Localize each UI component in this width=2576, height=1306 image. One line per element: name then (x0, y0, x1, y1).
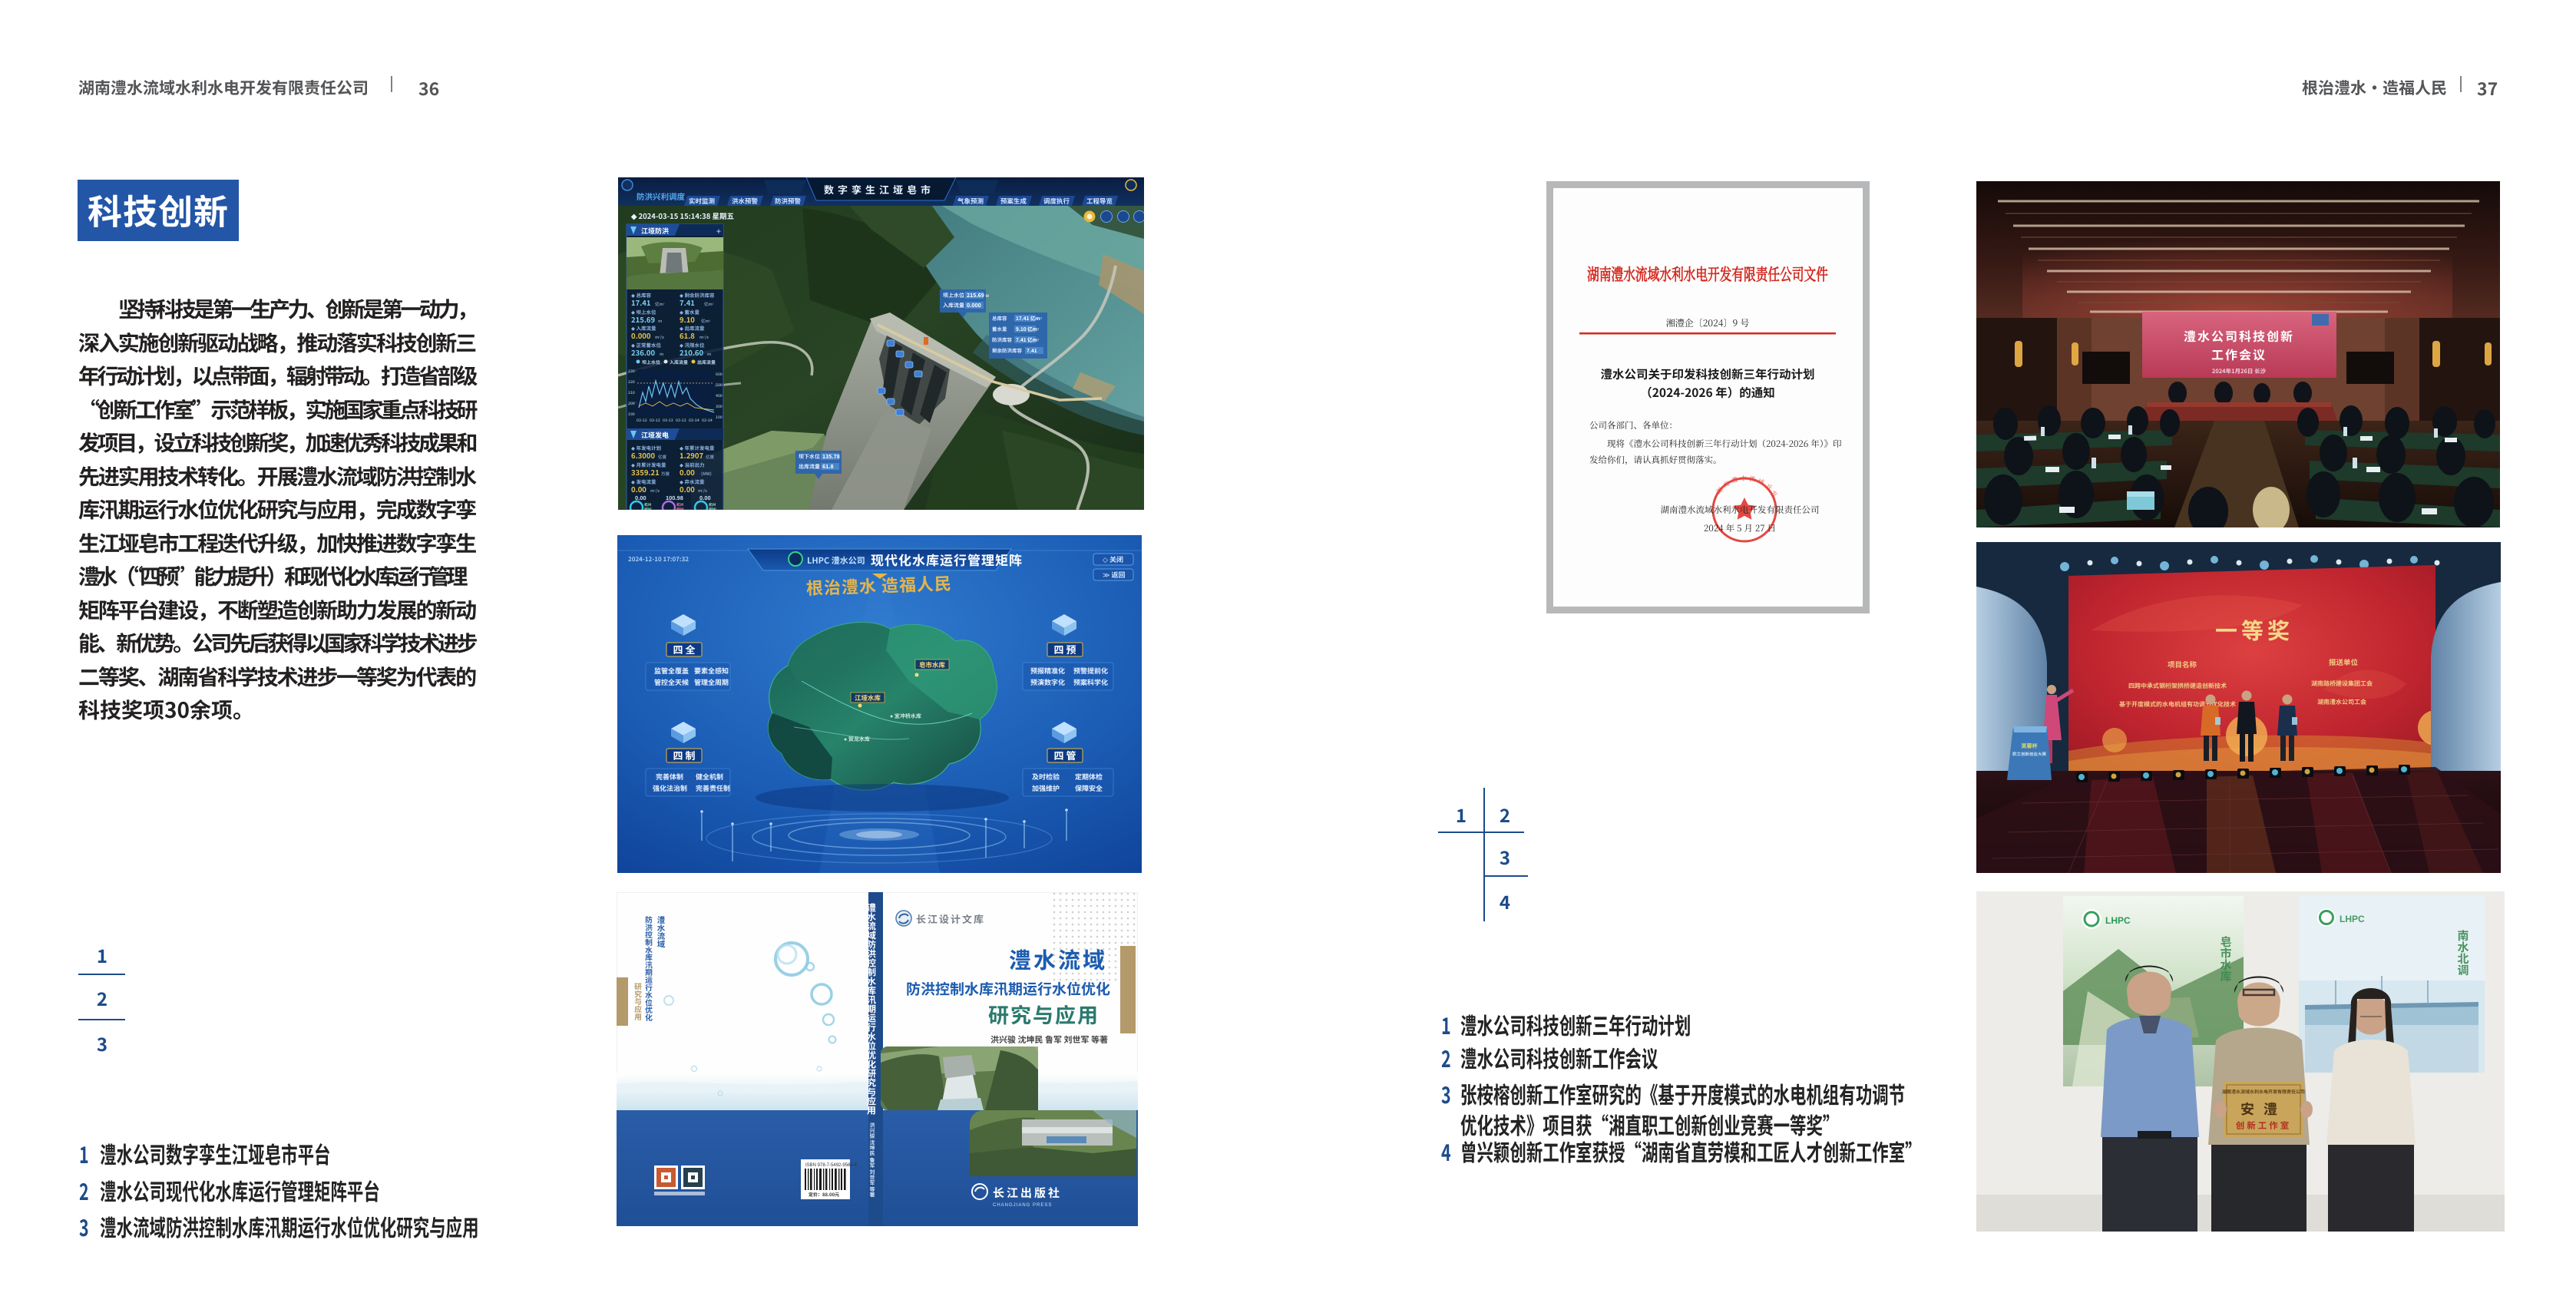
svg-text:m: m (707, 351, 711, 357)
svg-text:澧水流域防洪控制水库汛期运行水位优化研究与应用: 澧水流域防洪控制水库汛期运行水位优化研究与应用 (865, 903, 878, 1116)
svg-text:四 预: 四 预 (1054, 642, 1076, 656)
svg-text:流: 流 (1749, 474, 1756, 484)
svg-text:工程导览: 工程导览 (1086, 197, 1113, 206)
svg-text:m³/s: m³/s (699, 334, 709, 340)
svg-text:出库流量: 出库流量 (799, 463, 820, 471)
svg-text:210.60: 210.60 (680, 347, 704, 358)
svg-text:300: 300 (716, 404, 723, 409)
svg-text:215.69 м: 215.69 м (967, 292, 990, 299)
svg-text:● 宜冲桥水库: ● 宜冲桥水库 (890, 713, 921, 720)
svg-text:基于开度模式的水电机组有功调节优化技术: 基于开度模式的水电机组有功调节优化技术 (2119, 700, 2236, 709)
svg-text:四 全: 四 全 (673, 642, 696, 656)
svg-text:澧水流域: 澧水流域 (656, 916, 667, 948)
svg-text:蓄水量: 蓄水量 (992, 325, 1007, 332)
svg-text:预警提前化: 预警提前化 (1073, 666, 1108, 676)
svg-text:湘澧企〔2024〕9 号: 湘澧企〔2024〕9 号 (1666, 316, 1750, 329)
svg-text:0.00: 0.00 (680, 484, 695, 494)
svg-text:四 管: 四 管 (1054, 748, 1076, 762)
svg-text:发给你们，请认真抓好贯彻落实。: 发给你们，请认真抓好贯彻落实。 (1589, 454, 1722, 466)
svg-text:保障安全: 保障安全 (1075, 783, 1103, 793)
svg-text:及时检验: 及时检验 (1032, 772, 1060, 782)
svg-text:洪水预警: 洪水预警 (732, 197, 759, 206)
svg-text:● 贺龙水库: ● 贺龙水库 (844, 736, 870, 743)
svg-text:亿m³: 亿m³ (701, 318, 711, 324)
svg-text:洪兴骏 沈坤民 鲁军 刘世军 等著: 洪兴骏 沈坤民 鲁军 刘世军 等著 (990, 1033, 1108, 1046)
svg-text:澧水公司关于印发科技创新三年行动计划: 澧水公司关于印发科技创新三年行动计划 (1600, 365, 1814, 382)
svg-text:CHANGJIANG PRESS: CHANGJIANG PRESS (993, 1203, 1052, 1208)
svg-text:长江出版社: 长江出版社 (993, 1185, 1062, 1201)
svg-text:报送单位: 报送单位 (2329, 656, 2359, 667)
svg-text:剩余防洪库容: 剩余防洪库容 (992, 346, 1023, 354)
svg-text:03-13: 03-13 (676, 418, 686, 423)
svg-text:7.41 亿m³: 7.41 亿m³ (1016, 336, 1039, 343)
svg-text:2024 年 5 月 27 日: 2024 年 5 月 27 日 (1704, 522, 1776, 534)
svg-text:+: + (716, 225, 721, 236)
svg-text:定价：88.00元: 定价：88.00元 (809, 1191, 839, 1198)
svg-text:公司各部门、各单位：: 公司各部门、各单位： (1589, 419, 1678, 431)
svg-text:澧水流域: 澧水流域 (1009, 943, 1107, 975)
svg-text:实时监测: 实时监测 (689, 197, 715, 206)
svg-text:亿m³: 亿m³ (704, 301, 714, 307)
svg-text:9.10 亿m³: 9.10 亿m³ (1016, 325, 1039, 332)
svg-text:03-14: 03-14 (702, 418, 713, 423)
svg-text:组W: 组W (644, 507, 652, 510)
svg-text:创新工作室: 创新工作室 (2236, 1119, 2292, 1132)
svg-text:坝上水位: 坝上水位 (642, 359, 660, 365)
svg-text:0.00: 0.00 (680, 467, 695, 478)
svg-text:江垭水库: 江垭水库 (855, 693, 881, 703)
svg-text:安澧: 安澧 (2240, 1099, 2287, 1119)
svg-text:健全机制: 健全机制 (696, 772, 723, 782)
svg-text:坝上水位: 坝上水位 (943, 292, 964, 299)
svg-text:湖南路桥建设集团工会: 湖南路桥建设集团工会 (2311, 679, 2373, 688)
svg-text:03-14: 03-14 (689, 418, 699, 423)
svg-text:湖南澧水流域水利水电开发有限责任公司: 湖南澧水流域水利水电开发有限责任公司 (1661, 504, 1820, 516)
svg-text:100: 100 (716, 415, 723, 420)
svg-text:210: 210 (628, 390, 635, 395)
svg-text:m: m (660, 351, 663, 357)
svg-text:亿度: 亿度 (706, 454, 715, 460)
svg-text:0.00: 0.00 (631, 484, 646, 494)
svg-text:(MW): (MW) (701, 471, 712, 477)
svg-text:亿m³: 亿m³ (655, 301, 665, 307)
svg-text:61.8: 61.8 (680, 330, 695, 341)
svg-text:一等奖: 一等奖 (2215, 613, 2293, 646)
svg-text:湖南澧水流域水利水电开发有限责任公司文件: 湖南澧水流域水利水电开发有限责任公司文件 (1587, 262, 1828, 286)
svg-text:现将《澧水公司科技创新三年行动计划（2024-2026 年）: 现将《澧水公司科技创新三年行动计划（2024-2026 年）》印 (1607, 438, 1841, 450)
svg-text:预演数字化: 预演数字化 (1030, 677, 1065, 687)
svg-text:皂市水库: 皂市水库 (919, 660, 946, 670)
svg-text:预报精准化: 预报精准化 (1030, 666, 1065, 676)
svg-text:2024年1月26日 长沙: 2024年1月26日 长沙 (2212, 367, 2267, 375)
svg-text:管控全天候: 管控全天候 (654, 677, 689, 687)
svg-text:根治澧水 造福人民: 根治澧水 造福人民 (805, 570, 952, 600)
svg-text:出库流量: 出库流量 (697, 359, 716, 365)
svg-text:监管全覆盖: 监管全覆盖 (654, 666, 689, 676)
svg-text:03-13: 03-13 (650, 418, 660, 423)
svg-text:600: 600 (716, 372, 723, 377)
svg-text:完善责任制: 完善责任制 (696, 783, 730, 793)
svg-text:管理全周期: 管理全周期 (694, 677, 729, 687)
svg-text:四 制: 四 制 (673, 748, 696, 762)
svg-text:500: 500 (716, 382, 723, 388)
svg-text:项目名称: 项目名称 (2168, 659, 2197, 670)
svg-text:1.2907: 1.2907 (680, 450, 704, 461)
svg-text:防洪控制水库汛期运行水位优化: 防洪控制水库汛期运行水位优化 (906, 978, 1110, 999)
svg-text:135.78: 135.78 (822, 453, 840, 461)
svg-text:湖南澧水公司工会: 湖南澧水公司工会 (2317, 698, 2366, 706)
svg-text:完善体制: 完善体制 (656, 772, 683, 782)
svg-text:南水北调: 南水北调 (2455, 930, 2472, 976)
svg-text:◇ 关闭: ◇ 关闭 (1103, 554, 1123, 564)
svg-text:加强维护: 加强维护 (1032, 783, 1060, 793)
svg-text:水: 水 (1740, 474, 1747, 483)
svg-text:0.000: 0.000 (631, 330, 651, 341)
svg-text:6.3000: 6.3000 (631, 450, 656, 461)
svg-text:工作会议: 工作会议 (2211, 345, 2267, 363)
svg-text:预案生成: 预案生成 (1000, 197, 1027, 206)
svg-text:总库容: 总库容 (992, 314, 1007, 322)
svg-text:m³/s: m³/s (698, 488, 707, 494)
svg-text:◆ 2024-03-15 15:14:38 星期五: ◆ 2024-03-15 15:14:38 星期五 (630, 210, 734, 221)
svg-text:强化法治制: 强化法治制 (653, 783, 687, 793)
svg-text:03-13: 03-13 (663, 418, 673, 423)
svg-text:组W: 组W (676, 507, 684, 510)
svg-text:坝下水位: 坝下水位 (799, 453, 820, 461)
svg-text:江垭防洪: 江垭防洪 (641, 226, 669, 236)
svg-text:数字孪生江垭皂市: 数字孪生江垭皂市 (824, 182, 934, 197)
svg-text:亿度: 亿度 (658, 454, 667, 460)
svg-text:LHPC: LHPC (2340, 914, 2365, 924)
svg-text:9.10: 9.10 (680, 314, 695, 325)
svg-text:皂市水库: 皂市水库 (2218, 936, 2234, 982)
svg-text:190: 190 (628, 412, 635, 417)
svg-text:入库流量: 入库流量 (943, 302, 964, 309)
svg-text:组W: 组W (709, 507, 716, 510)
svg-text:17.41: 17.41 (631, 297, 651, 308)
svg-text:7.41: 7.41 (680, 297, 695, 308)
svg-text:防洪库容: 防洪库容 (992, 336, 1013, 343)
svg-text:3359.21: 3359.21 (631, 467, 660, 478)
svg-text:215.69: 215.69 (631, 314, 656, 325)
svg-text:230: 230 (628, 369, 635, 374)
svg-text:236.00: 236.00 (631, 347, 656, 358)
svg-text:现代化水库运行管理矩阵: 现代化水库运行管理矩阵 (871, 550, 1023, 569)
svg-text:220: 220 (628, 379, 635, 385)
svg-text:（2024-2026 年）的通知: （2024-2026 年）的通知 (1640, 384, 1774, 401)
svg-text:长江设计文库: 长江设计文库 (916, 911, 985, 926)
svg-text:澧水公司科技创新: 澧水公司科技创新 (2184, 326, 2294, 345)
svg-text:17.41 亿m³: 17.41 亿m³ (1016, 314, 1042, 322)
svg-text:7.41: 7.41 (1027, 346, 1037, 354)
svg-text:四跨中承式钢桁架拱桥建造创新技术: 四跨中承式钢桁架拱桥建造创新技术 (2128, 682, 2227, 690)
svg-text:61.8: 61.8 (822, 463, 834, 471)
svg-text:400: 400 (716, 393, 723, 398)
svg-text:m³/s: m³/s (655, 334, 664, 340)
svg-text:m³/s: m³/s (650, 488, 660, 494)
svg-text:江垭发电: 江垭发电 (641, 430, 669, 440)
svg-text:防洪控制水库汛期运行水位优化: 防洪控制水库汛期运行水位优化 (643, 916, 654, 1022)
svg-text:03-12: 03-12 (637, 418, 647, 423)
svg-text:洪兴骏 沈坤民 鲁军 刘世军 等著: 洪兴骏 沈坤民 鲁军 刘世军 等著 (868, 1122, 876, 1198)
svg-text:m: m (658, 318, 662, 324)
svg-text:研究与应用: 研究与应用 (988, 999, 1100, 1029)
svg-text:200: 200 (628, 401, 635, 406)
svg-text:气象预测: 气象预测 (957, 197, 984, 206)
svg-text:防洪兴利调度: 防洪兴利调度 (637, 191, 685, 203)
svg-text:要素全感知: 要素全感知 (694, 666, 729, 676)
svg-text:入库流量: 入库流量 (670, 359, 688, 365)
svg-text:2024-12-10 17:07:32: 2024-12-10 17:07:32 (628, 555, 689, 564)
svg-text:预案科学化: 预案科学化 (1073, 677, 1108, 687)
svg-text:LHPC 澧水公司: LHPC 澧水公司 (807, 554, 865, 567)
svg-text:LHPC: LHPC (2105, 915, 2131, 926)
svg-text:调度执行: 调度执行 (1043, 197, 1070, 206)
svg-text:定期体检: 定期体检 (1075, 772, 1103, 782)
svg-text:职工创新创业大赛: 职工创新创业大赛 (2012, 751, 2047, 757)
svg-text:万度: 万度 (661, 471, 670, 477)
svg-text:芙蓉杯: 芙蓉杯 (2022, 742, 2038, 750)
svg-text:研究与应用: 研究与应用 (633, 983, 643, 1020)
svg-text:≫ 返回: ≫ 返回 (1103, 570, 1125, 580)
svg-text:0.000: 0.000 (967, 302, 981, 309)
svg-text:ISBN 978-7-5492-9565-6: ISBN 978-7-5492-9565-6 (805, 1163, 858, 1168)
svg-text:防洪预警: 防洪预警 (775, 197, 802, 206)
svg-text:湖南澧水流域水利水电开发有限责任公司: 湖南澧水流域水利水电开发有限责任公司 (2222, 1088, 2305, 1095)
